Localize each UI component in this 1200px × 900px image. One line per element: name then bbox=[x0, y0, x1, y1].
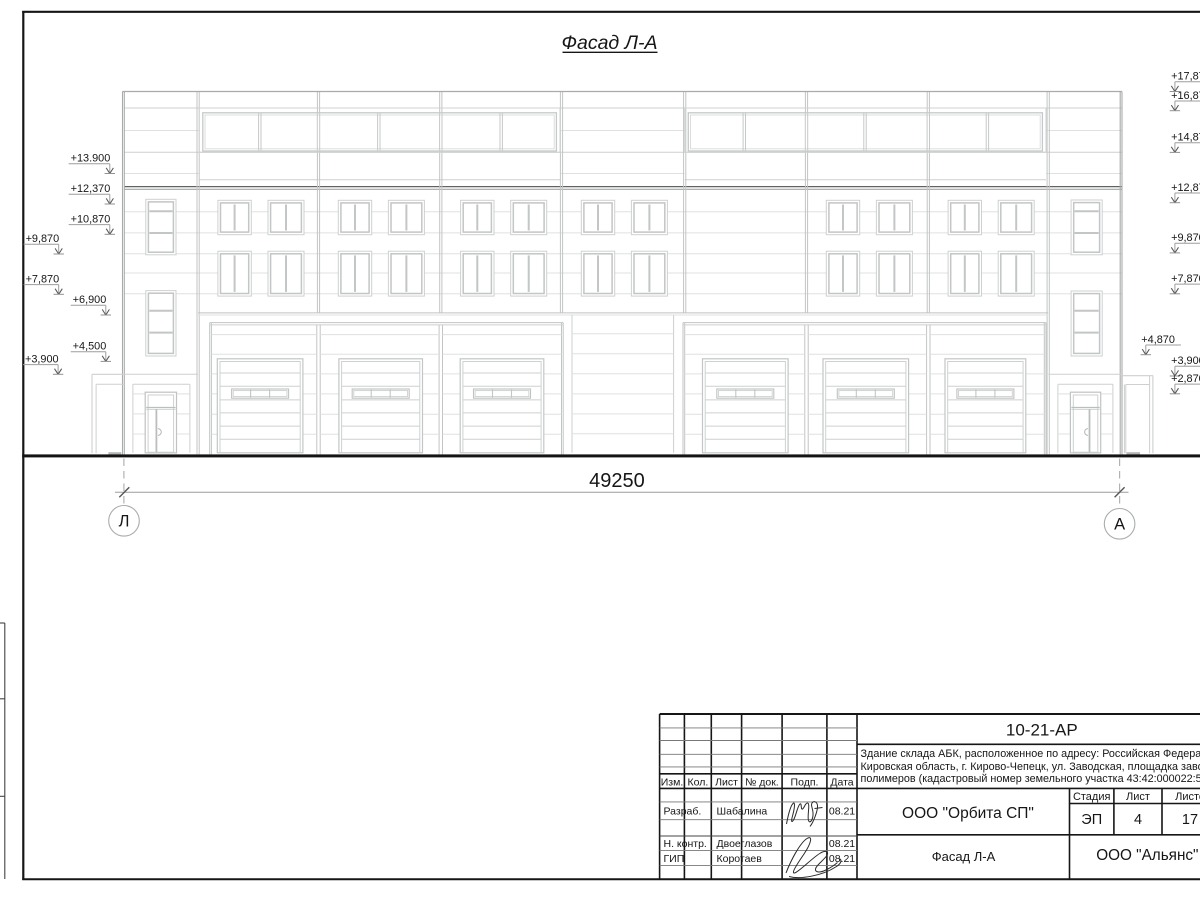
svg-text:Дата: Дата bbox=[830, 777, 853, 789]
svg-text:Фасад Л-А: Фасад Л-А bbox=[932, 849, 996, 864]
svg-text:+7,870: +7,870 bbox=[1171, 273, 1200, 285]
svg-text:Стадия: Стадия bbox=[1073, 791, 1111, 803]
svg-text:Двоеглазов: Двоеглазов bbox=[717, 838, 773, 850]
svg-text:08.21: 08.21 bbox=[829, 838, 855, 850]
svg-text:+4,500: +4,500 bbox=[73, 341, 107, 353]
svg-text:49250: 49250 bbox=[589, 470, 645, 492]
svg-text:ЭП: ЭП bbox=[1081, 812, 1102, 828]
svg-text:+13.900: +13.900 bbox=[71, 153, 111, 165]
svg-text:Листов: Листов bbox=[1175, 791, 1200, 803]
svg-text:+3,900: +3,900 bbox=[1171, 355, 1200, 367]
svg-text:+4,870: +4,870 bbox=[1141, 334, 1175, 346]
svg-text:Фасад Л-А: Фасад Л-А bbox=[561, 32, 657, 54]
svg-text:Н. контр.: Н. контр. bbox=[664, 838, 707, 850]
svg-text:17: 17 bbox=[1182, 812, 1198, 828]
svg-text:+16,870: +16,870 bbox=[1171, 90, 1200, 102]
svg-text:Разраб.: Разраб. bbox=[664, 806, 702, 818]
svg-text:№ док.: № док. bbox=[745, 777, 779, 789]
svg-text:+2,870: +2,870 bbox=[1171, 373, 1200, 385]
svg-text:Л: Л bbox=[119, 513, 130, 531]
svg-text:+12,370: +12,370 bbox=[71, 183, 111, 195]
svg-text:+3,900: +3,900 bbox=[25, 354, 59, 366]
svg-text:полимеров (кадастровый номер з: полимеров (кадастровый номер земельного … bbox=[861, 773, 1200, 785]
svg-text:+9,870: +9,870 bbox=[1171, 232, 1200, 244]
svg-text:+6,900: +6,900 bbox=[73, 294, 107, 306]
svg-text:Коротаев: Коротаев bbox=[717, 853, 763, 865]
svg-text:08.21: 08.21 bbox=[829, 853, 855, 865]
svg-text:А: А bbox=[1114, 516, 1125, 534]
svg-text:Изм.: Изм. bbox=[661, 777, 684, 789]
svg-text:Кол.: Кол. bbox=[688, 777, 709, 789]
svg-text:+9,870: +9,870 bbox=[26, 233, 60, 245]
svg-text:4: 4 bbox=[1134, 812, 1142, 828]
svg-text:+17,870: +17,870 bbox=[1171, 71, 1200, 83]
svg-text:10-21-АР: 10-21-АР bbox=[1006, 720, 1078, 739]
svg-text:+10,870: +10,870 bbox=[71, 214, 111, 226]
svg-text:+12,870: +12,870 bbox=[1171, 182, 1200, 194]
svg-text:+14,870: +14,870 bbox=[1171, 132, 1200, 144]
svg-text:Здание склада АБК, расположенн: Здание склада АБК, расположенное по адре… bbox=[861, 748, 1200, 760]
svg-text:ООО "Альянс": ООО "Альянс" bbox=[1096, 847, 1198, 864]
svg-text:Подп.: Подп. bbox=[791, 777, 819, 789]
svg-text:Кировская область, г. Кирово-Ч: Кировская область, г. Кирово-Чепецк, ул.… bbox=[861, 761, 1200, 773]
svg-text:ГИП: ГИП bbox=[664, 853, 685, 865]
svg-text:Шабалина: Шабалина bbox=[717, 806, 768, 818]
svg-text:ООО "Орбита СП": ООО "Орбита СП" bbox=[902, 805, 1034, 822]
svg-text:+7,870: +7,870 bbox=[26, 274, 60, 286]
svg-text:Лист: Лист bbox=[715, 777, 738, 789]
svg-text:08.21: 08.21 bbox=[829, 806, 855, 818]
svg-text:Лист: Лист bbox=[1126, 791, 1150, 803]
